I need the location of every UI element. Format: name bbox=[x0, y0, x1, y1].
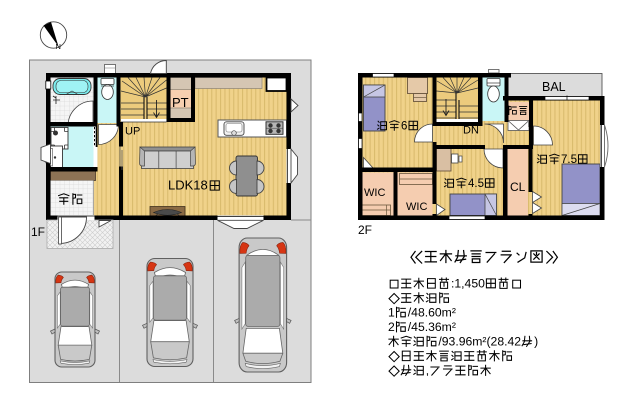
svg-text:2F: 2F bbox=[358, 223, 372, 237]
svg-text::1,450: :1,450 bbox=[451, 277, 485, 291]
svg-text:/48.60m²: /48.60m² bbox=[408, 306, 456, 320]
svg-text:PT: PT bbox=[172, 95, 189, 110]
svg-text:WIC: WIC bbox=[406, 201, 427, 213]
svg-text:LDK18: LDK18 bbox=[168, 178, 208, 193]
svg-text:1F: 1F bbox=[31, 225, 45, 239]
svg-text:N: N bbox=[56, 42, 61, 51]
svg-text:4.5: 4.5 bbox=[468, 178, 484, 190]
svg-text:UP: UP bbox=[125, 126, 140, 138]
svg-text:,: , bbox=[426, 364, 429, 378]
svg-text:7.5: 7.5 bbox=[561, 154, 577, 166]
svg-text:6: 6 bbox=[401, 120, 407, 132]
svg-text:2: 2 bbox=[388, 320, 395, 334]
svg-text:BAL: BAL bbox=[542, 80, 566, 94]
svg-text:): ) bbox=[534, 335, 538, 349]
svg-text:DN: DN bbox=[463, 125, 479, 137]
svg-text:WIC: WIC bbox=[364, 187, 385, 199]
svg-text:CL: CL bbox=[510, 180, 526, 194]
svg-text:1: 1 bbox=[388, 306, 395, 320]
svg-text:/93.96m²(28.42: /93.96m²(28.42 bbox=[438, 335, 521, 349]
svg-text:/45.36m²: /45.36m² bbox=[408, 320, 456, 334]
